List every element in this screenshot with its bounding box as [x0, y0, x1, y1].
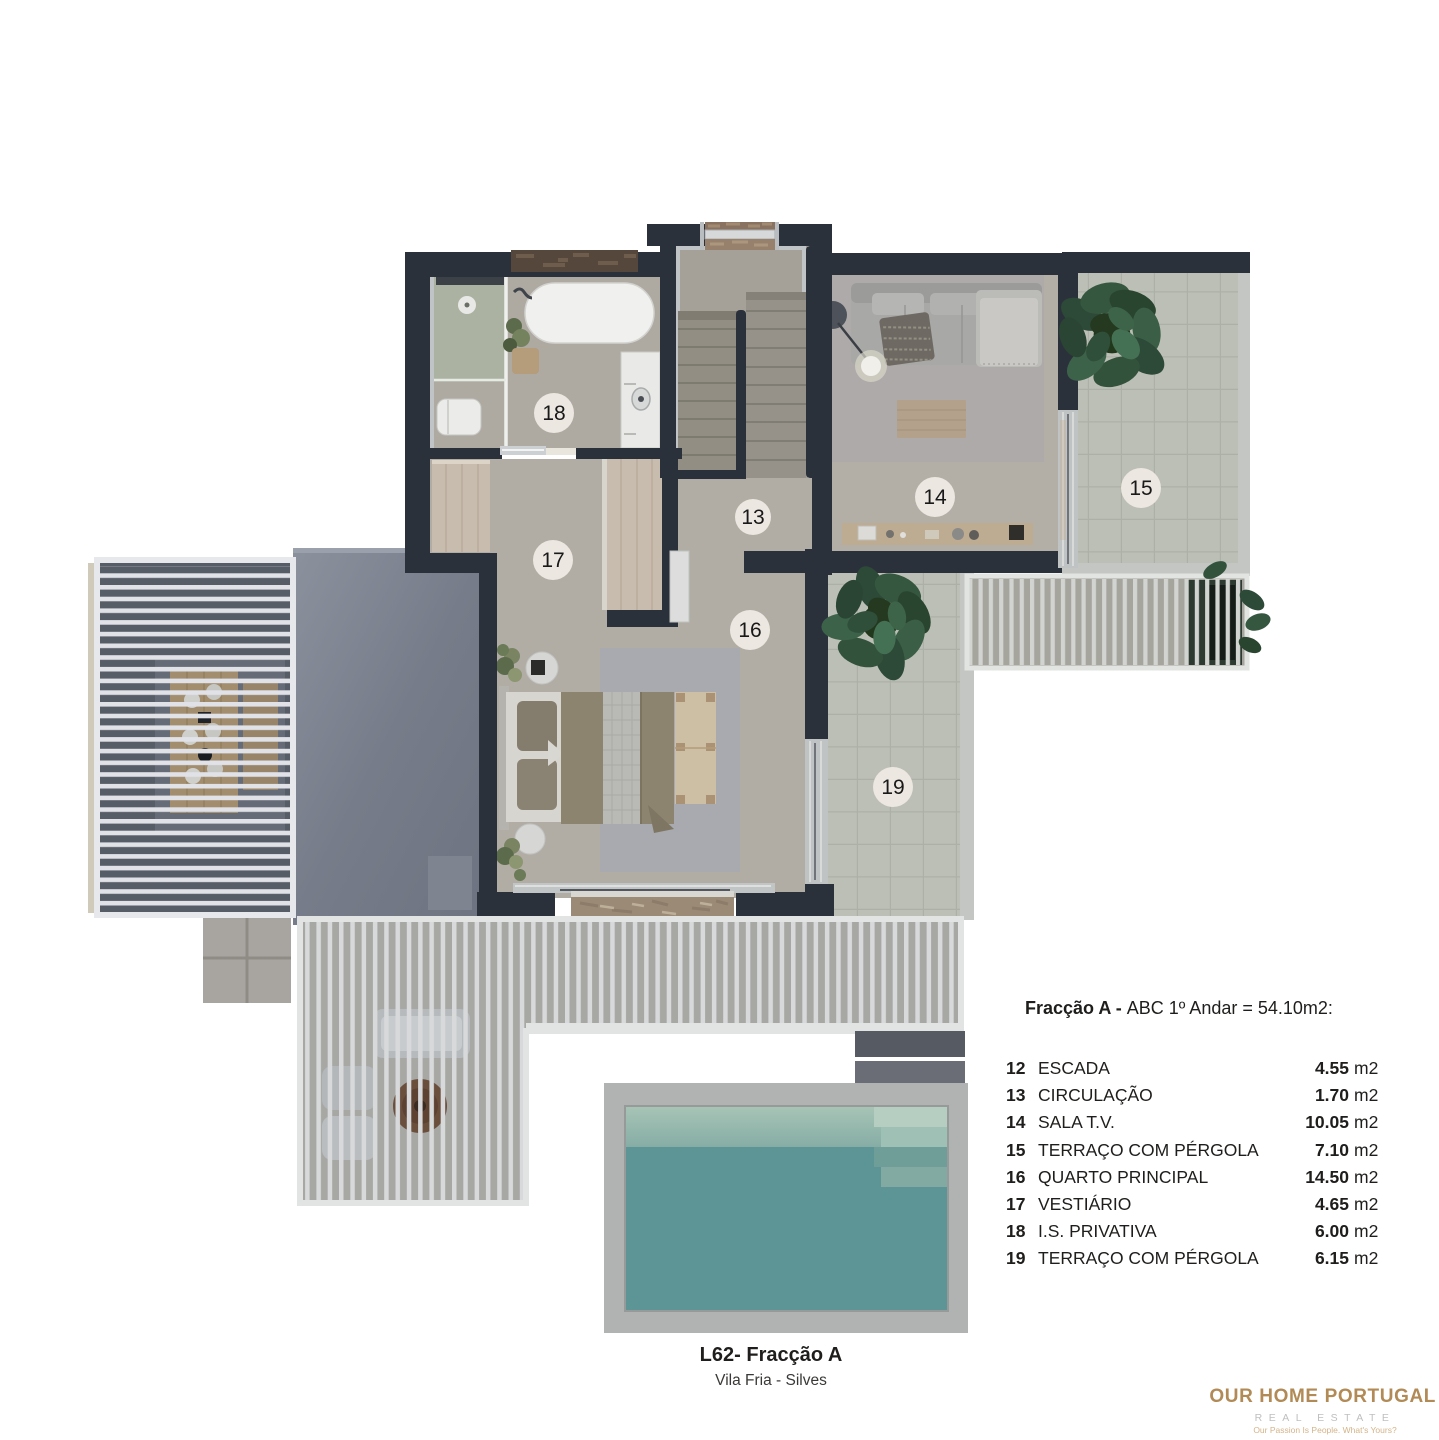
svg-text:ESCADA: ESCADA: [1038, 1058, 1110, 1078]
svg-text:4.55: 4.55: [1315, 1058, 1349, 1078]
svg-text:Fracção A - ABC 1º Andar = 54.: Fracção A - ABC 1º Andar = 54.10m2:: [1025, 998, 1333, 1018]
svg-text:m2: m2: [1354, 1167, 1378, 1187]
svg-text:16: 16: [1006, 1167, 1026, 1187]
svg-text:m2: m2: [1354, 1221, 1378, 1241]
svg-text:17: 17: [1006, 1194, 1025, 1214]
svg-text:13: 13: [1006, 1085, 1026, 1105]
svg-text:Vila Fria - Silves: Vila Fria - Silves: [715, 1372, 827, 1389]
svg-text:m2: m2: [1354, 1112, 1378, 1132]
svg-text:TERRAÇO COM PÉRGOLA: TERRAÇO COM PÉRGOLA: [1038, 1140, 1259, 1160]
svg-text:m2: m2: [1354, 1085, 1378, 1105]
svg-text:18: 18: [1006, 1221, 1026, 1241]
svg-text:m2: m2: [1354, 1194, 1378, 1214]
svg-text:15: 15: [1129, 477, 1152, 500]
svg-text:16: 16: [738, 619, 761, 642]
svg-text:14: 14: [923, 486, 947, 509]
svg-text:OUR HOME PORTUGAL: OUR HOME PORTUGAL: [1209, 1386, 1436, 1407]
svg-text:10.05: 10.05: [1305, 1112, 1349, 1132]
svg-text:TERRAÇO COM PÉRGOLA: TERRAÇO COM PÉRGOLA: [1038, 1248, 1259, 1268]
svg-text:6.15: 6.15: [1315, 1248, 1349, 1268]
svg-text:m2: m2: [1354, 1248, 1378, 1268]
svg-text:QUARTO PRINCIPAL: QUARTO PRINCIPAL: [1038, 1167, 1208, 1187]
svg-text:SALA T.V.: SALA T.V.: [1038, 1112, 1115, 1132]
svg-text:REAL ESTATE: REAL ESTATE: [1255, 1412, 1396, 1424]
svg-text:VESTIÁRIO: VESTIÁRIO: [1038, 1194, 1131, 1214]
svg-text:CIRCULAÇÃO: CIRCULAÇÃO: [1038, 1084, 1153, 1105]
svg-text:6.00: 6.00: [1315, 1221, 1349, 1241]
svg-text:Our Passion Is People. What's: Our Passion Is People. What's Yours?: [1253, 1425, 1397, 1435]
svg-text:12: 12: [1006, 1058, 1026, 1078]
svg-text:14.50: 14.50: [1305, 1167, 1349, 1187]
svg-text:4.65: 4.65: [1315, 1194, 1349, 1214]
svg-text:17: 17: [541, 549, 564, 572]
svg-text:L62- Fracção A: L62- Fracção A: [700, 1344, 843, 1366]
svg-text:I.S. PRIVATIVA: I.S. PRIVATIVA: [1038, 1221, 1157, 1241]
svg-text:13: 13: [741, 506, 764, 529]
svg-text:14: 14: [1006, 1112, 1026, 1132]
svg-text:7.10: 7.10: [1315, 1140, 1349, 1160]
svg-text:18: 18: [542, 402, 565, 425]
svg-text:m2: m2: [1354, 1058, 1378, 1078]
svg-text:m2: m2: [1354, 1140, 1378, 1160]
svg-text:19: 19: [881, 776, 904, 799]
svg-text:19: 19: [1006, 1248, 1026, 1268]
svg-text:15: 15: [1006, 1140, 1026, 1160]
svg-text:1.70: 1.70: [1315, 1085, 1349, 1105]
